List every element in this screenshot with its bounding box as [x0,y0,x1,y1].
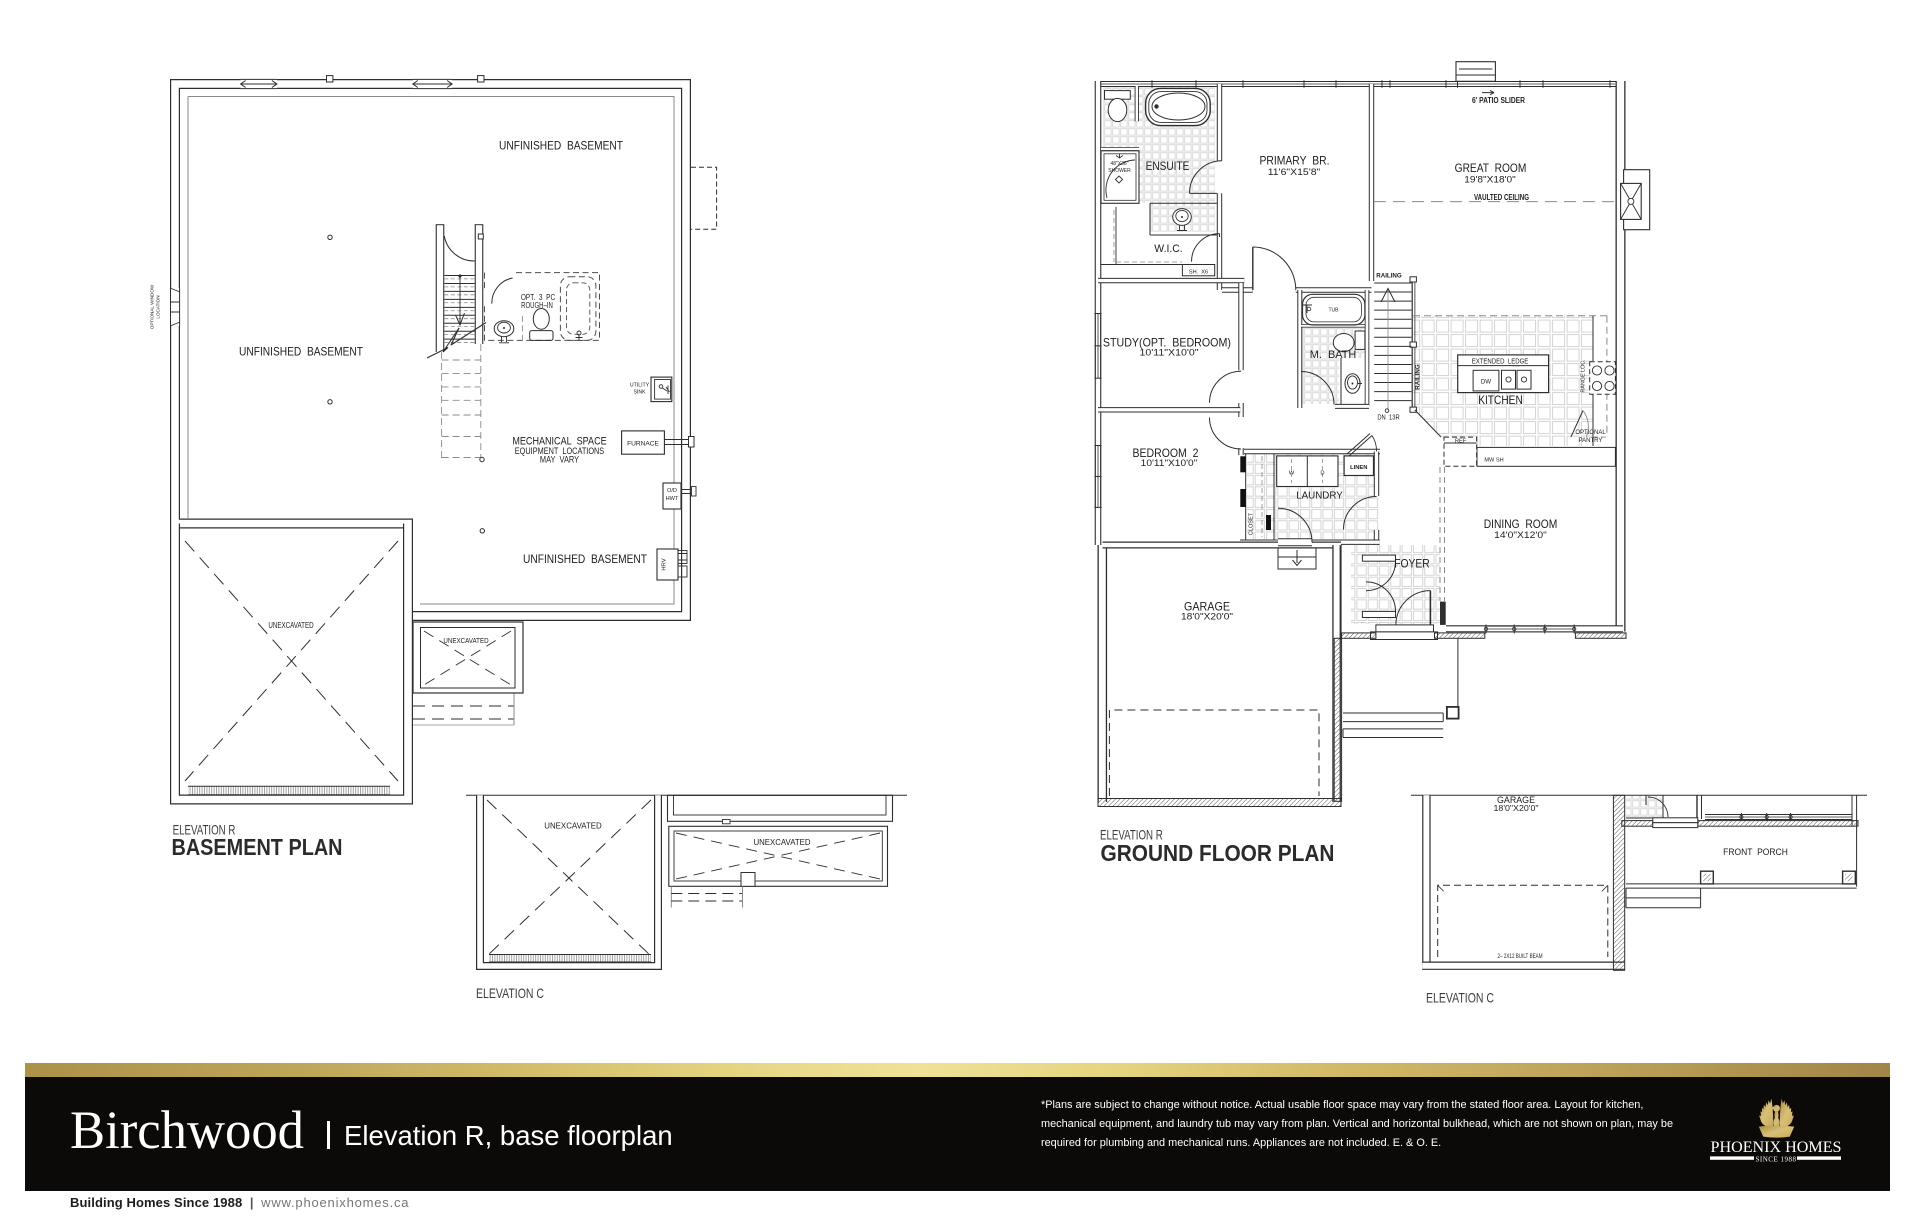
svg-text:18'0"X20'0": 18'0"X20'0" [1181,612,1233,623]
svg-text:UNFINISHED BASEMENT: UNFINISHED BASEMENT [523,552,648,566]
svg-text:UNFINISHED BASEMENT: UNFINISHED BASEMENT [239,345,364,359]
svg-text:BASEMENT PLAN: BASEMENT PLAN [172,834,343,860]
svg-text:CLOSET: CLOSET [1248,512,1254,535]
svg-text:FURNACE: FURNACE [627,441,659,448]
svg-text:UNEXCAVATED: UNEXCAVATED [443,636,489,645]
svg-text:11'6"X15'8": 11'6"X15'8" [1268,167,1321,178]
svg-text:UNEXCAVATED: UNEXCAVATED [268,621,313,630]
svg-text:UNEXCAVATED: UNEXCAVATED [754,837,811,847]
svg-text:ELEVATION C: ELEVATION C [476,985,544,1001]
svg-text:2– 2X12 BUILT BEAM: 2– 2X12 BUILT BEAM [1498,954,1543,960]
svg-text:OPTIONAL: OPTIONAL [1575,430,1606,436]
svg-text:LOCATION: LOCATION [156,295,161,318]
svg-text:DN 13R: DN 13R [1377,415,1399,422]
svg-text:18'0"X20'0": 18'0"X20'0" [1494,804,1539,813]
svg-text:UTILITY: UTILITY [630,383,650,389]
svg-text:MAY VARY: MAY VARY [540,455,580,466]
svg-text:6' PATIO SLIDER: 6' PATIO SLIDER [1472,96,1525,105]
svg-text:M. BATH: M. BATH [1310,349,1357,361]
svg-text:ROUGH–IN: ROUGH–IN [521,300,553,310]
svg-text:SHOWER: SHOWER [1108,168,1131,174]
svg-text:FRONT PORCH: FRONT PORCH [1723,847,1788,858]
svg-text:ELEVATION C: ELEVATION C [1426,990,1494,1006]
svg-text:FOYER: FOYER [1394,559,1430,571]
svg-text:W.I.C.: W.I.C. [1154,243,1182,255]
svg-text:D: D [1320,471,1324,477]
svg-text:GREAT ROOM: GREAT ROOM [1455,161,1527,175]
svg-text:MW SH: MW SH [1484,458,1503,464]
svg-text:PRIMARY BR.: PRIMARY BR. [1260,154,1330,168]
svg-text:10'11"X10'0": 10'11"X10'0" [1141,458,1198,469]
svg-text:14'0"X12'0": 14'0"X12'0" [1494,530,1547,541]
svg-text:48"X36": 48"X36" [1110,161,1128,167]
svg-text:KITCHEN: KITCHEN [1478,393,1523,407]
svg-text:HRV: HRV [662,558,668,570]
svg-text:SINK: SINK [633,390,646,396]
svg-text:O/D: O/D [667,488,677,494]
svg-text:19'8"X18'0": 19'8"X18'0" [1464,175,1516,186]
svg-text:UNFINISHED BASEMENT: UNFINISHED BASEMENT [499,139,624,153]
svg-text:ENSUITE: ENSUITE [1146,159,1190,173]
svg-text:PHOENIX HOMES: PHOENIX HOMES [1711,1139,1842,1156]
svg-text:DW: DW [1481,379,1491,386]
svg-text:OPTIONAL WINDOW: OPTIONAL WINDOW [150,284,155,329]
svg-text:TUB: TUB [1329,308,1340,314]
svg-text:REF: REF [1455,439,1467,445]
svg-text:EXTENDED LEDGE: EXTENDED LEDGE [1472,356,1529,365]
svg-text:LAUNDRY: LAUNDRY [1296,490,1343,502]
svg-text:RANGE LOC.: RANGE LOC. [1581,359,1587,392]
svg-text:RAILING: RAILING [1415,364,1422,390]
svg-text:VAULTED CEILING: VAULTED CEILING [1474,193,1529,202]
svg-text:SH. X6: SH. X6 [1189,269,1208,275]
svg-text:UNEXCAVATED: UNEXCAVATED [544,821,602,831]
svg-text:RAILING: RAILING [1376,273,1402,280]
svg-text:W: W [1289,471,1295,477]
svg-text:SINCE 1988: SINCE 1988 [1756,1156,1797,1164]
svg-text:PANTRY: PANTRY [1579,438,1603,444]
svg-text:···: ··· [1513,363,1520,370]
svg-text:GROUND FLOOR PLAN: GROUND FLOOR PLAN [1101,840,1335,866]
svg-text:10'11"X10'0": 10'11"X10'0" [1140,348,1199,359]
svg-text:DINING ROOM: DINING ROOM [1484,517,1558,531]
svg-text:HWT: HWT [666,496,679,502]
svg-text:LINEN: LINEN [1350,465,1367,471]
